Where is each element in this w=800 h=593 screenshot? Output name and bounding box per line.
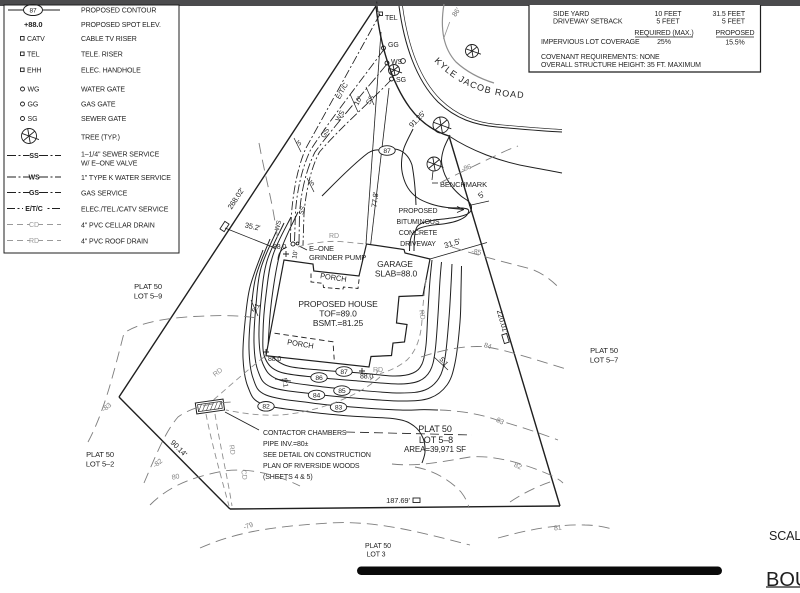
svg-text:PLAT 50: PLAT 50 <box>86 450 114 459</box>
svg-text:SLAB=88.0: SLAB=88.0 <box>375 269 418 279</box>
svg-text:BITUMINOUS: BITUMINOUS <box>397 219 440 226</box>
svg-text:PIPE INV.=80±: PIPE INV.=80± <box>263 441 309 448</box>
svg-text:TEL: TEL <box>27 52 40 59</box>
svg-text:ELEC./TEL./CATV SERVICE: ELEC./TEL./CATV SERVICE <box>81 207 169 214</box>
svg-text:187.69': 187.69' <box>386 496 410 505</box>
svg-text:TEL: TEL <box>385 15 398 22</box>
svg-text:LOT 5–8: LOT 5–8 <box>419 435 453 445</box>
svg-text:EHH: EHH <box>27 68 42 75</box>
svg-text:PROPOSED SPOT ELEV.: PROPOSED SPOT ELEV. <box>81 22 161 29</box>
svg-text:REQUIRED (MAX.): REQUIRED (MAX.) <box>634 30 693 37</box>
svg-text:84: 84 <box>313 392 321 399</box>
svg-text:WATER GATE: WATER GATE <box>81 87 125 94</box>
svg-text:LOT 5–9: LOT 5–9 <box>134 292 162 301</box>
svg-text:BENCHMARK: BENCHMARK <box>440 180 487 189</box>
svg-text:TOF=89.0: TOF=89.0 <box>319 309 357 319</box>
svg-text:PLAT 50: PLAT 50 <box>134 282 162 291</box>
svg-text:PLAN OF RIVERSIDE WOODS: PLAN OF RIVERSIDE WOODS <box>263 463 360 470</box>
svg-text:82: 82 <box>262 404 270 411</box>
svg-text:DRIVEWAY SETBACK: DRIVEWAY SETBACK <box>553 19 623 26</box>
svg-text:CONCRETE: CONCRETE <box>399 230 438 237</box>
svg-text:10': 10' <box>291 250 299 259</box>
svg-text:RD: RD <box>29 238 39 245</box>
svg-text:PROPOSED HOUSE: PROPOSED HOUSE <box>298 299 378 309</box>
svg-text:IMPERVIOUS LOT COVERAGE: IMPERVIOUS LOT COVERAGE <box>541 39 640 46</box>
svg-text:RD: RD <box>329 233 339 240</box>
svg-text:GG: GG <box>28 102 39 109</box>
svg-text:81: 81 <box>554 524 563 532</box>
svg-text:1" TYPE K WATER SERVICE: 1" TYPE K WATER SERVICE <box>81 175 171 182</box>
svg-text:87: 87 <box>383 148 391 155</box>
svg-text:15.5%: 15.5% <box>725 40 744 47</box>
svg-text:SS: SS <box>29 153 39 160</box>
svg-text:1–1/4" SEWER SERVICE: 1–1/4" SEWER SERVICE <box>81 152 160 159</box>
svg-text:PLAT 50: PLAT 50 <box>418 424 452 434</box>
svg-text:CATV: CATV <box>27 36 45 43</box>
svg-text:PROPOSED: PROPOSED <box>399 208 438 215</box>
svg-text:E–ONE: E–ONE <box>309 244 334 253</box>
svg-text:SG: SG <box>396 77 406 84</box>
svg-text:GRINDER PUMP: GRINDER PUMP <box>309 253 366 262</box>
svg-text:TELE. RISER: TELE. RISER <box>81 52 123 59</box>
svg-text:GARAGE: GARAGE <box>377 259 413 269</box>
svg-text:87: 87 <box>340 369 348 376</box>
svg-text:SG: SG <box>28 116 38 123</box>
svg-text:CD: CD <box>239 469 247 480</box>
svg-text:SEWER GATE: SEWER GATE <box>81 116 127 123</box>
svg-text:85: 85 <box>338 388 346 395</box>
svg-text:4" PVC CELLAR DRAIN: 4" PVC CELLAR DRAIN <box>81 223 155 230</box>
svg-text:5 FEET: 5 FEET <box>722 19 746 26</box>
svg-text:83: 83 <box>335 405 343 412</box>
svg-text:LOT 5–7: LOT 5–7 <box>590 356 618 365</box>
svg-text:W/ E–ONE VALVE: W/ E–ONE VALVE <box>81 161 138 168</box>
svg-text:E/T/C: E/T/C <box>25 206 42 213</box>
svg-text:88.0: 88.0 <box>273 244 286 251</box>
svg-text:+88.0: +88.0 <box>24 20 42 29</box>
svg-text:GG: GG <box>388 42 399 49</box>
svg-text:BOUN: BOUN <box>766 569 800 588</box>
svg-text:LOT 3: LOT 3 <box>367 552 386 559</box>
svg-text:87: 87 <box>29 8 37 15</box>
svg-text:SCALE: SCALE <box>769 529 800 543</box>
svg-text:CABLE TV RISER: CABLE TV RISER <box>81 36 137 43</box>
svg-text:GS: GS <box>29 190 39 197</box>
svg-text:4" PVC ROOF DRAIN: 4" PVC ROOF DRAIN <box>81 239 148 246</box>
svg-text:GAS GATE: GAS GATE <box>81 102 116 109</box>
svg-text:PLAT 50: PLAT 50 <box>590 346 618 355</box>
svg-text:LOT 5–2: LOT 5–2 <box>86 460 114 469</box>
svg-text:SEE DETAIL ON CONSTRUCTION: SEE DETAIL ON CONSTRUCTION <box>263 452 371 459</box>
svg-text:ELEC. HANDHOLE: ELEC. HANDHOLE <box>81 68 141 75</box>
svg-text:PROPOSED: PROPOSED <box>716 30 755 37</box>
svg-text:5 FEET: 5 FEET <box>656 19 680 26</box>
svg-text:CD: CD <box>29 222 39 229</box>
svg-text:DRIVEWAY: DRIVEWAY <box>400 241 436 248</box>
svg-text:AREA=39,971 SF: AREA=39,971 SF <box>404 445 466 454</box>
svg-text:25%: 25% <box>657 39 671 46</box>
svg-text:GAS SERVICE: GAS SERVICE <box>81 191 128 198</box>
svg-text:RD: RD <box>227 444 235 455</box>
svg-text:SIDE YARD: SIDE YARD <box>553 11 589 18</box>
svg-text:PLAT 50: PLAT 50 <box>365 543 391 550</box>
svg-text:PROPOSED CONTOUR: PROPOSED CONTOUR <box>81 8 156 15</box>
svg-text:88.0: 88.0 <box>268 356 281 363</box>
svg-text:10 FEET: 10 FEET <box>655 11 683 18</box>
svg-text:WS: WS <box>28 175 40 182</box>
svg-text:BSMT.=81.25: BSMT.=81.25 <box>313 318 364 328</box>
svg-text:86: 86 <box>315 375 323 382</box>
svg-text:TREE (TYP.): TREE (TYP.) <box>81 135 120 142</box>
svg-text:COVENANT REQUIREMENTS: NONE: COVENANT REQUIREMENTS: NONE <box>541 54 660 61</box>
svg-text:CONTACTOR CHAMBERS: CONTACTOR CHAMBERS <box>263 430 347 437</box>
svg-text:WG: WG <box>28 87 40 94</box>
svg-text:31.5 FEET: 31.5 FEET <box>712 11 745 18</box>
svg-text:OVERALL STRUCTURE HEIGHT: 35 F: OVERALL STRUCTURE HEIGHT: 35 FT. MAXIMUM <box>541 62 701 69</box>
